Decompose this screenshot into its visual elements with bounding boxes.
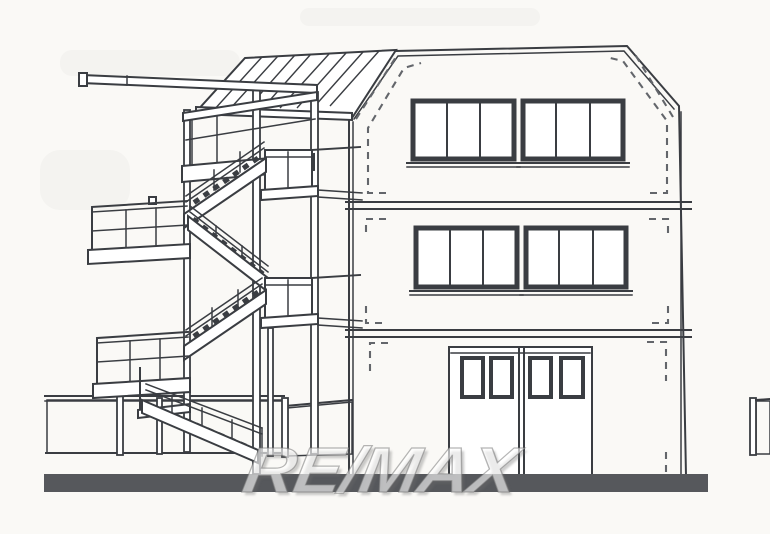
door-pane [491,358,512,397]
door-pane [462,358,483,397]
fence-mesh-far-right [756,401,770,454]
stair-column-mid [268,328,273,456]
window-group-second-floor-left [410,228,523,295]
balcony-right-lower [261,275,362,328]
fence [45,393,770,457]
ground-baseline-bar [44,474,708,492]
elevation-drawing [0,0,770,534]
fence-mesh-right [287,402,352,456]
balcony-left-middle [88,197,190,264]
balcony-right-upper [261,147,362,200]
fence-post [750,398,756,455]
building [346,46,691,476]
window-group-third-floor-left [407,101,520,167]
stair-column-right [311,92,318,454]
window-group-third-floor-right [517,101,629,167]
window-group-second-floor-right [520,228,632,295]
door-pane [530,358,551,397]
fence-gate-post [282,398,288,457]
door-pane [561,358,583,397]
fence-post [117,393,123,455]
elevation-sheet: RE/MAX [0,0,770,534]
entrance-double-door [449,347,592,475]
